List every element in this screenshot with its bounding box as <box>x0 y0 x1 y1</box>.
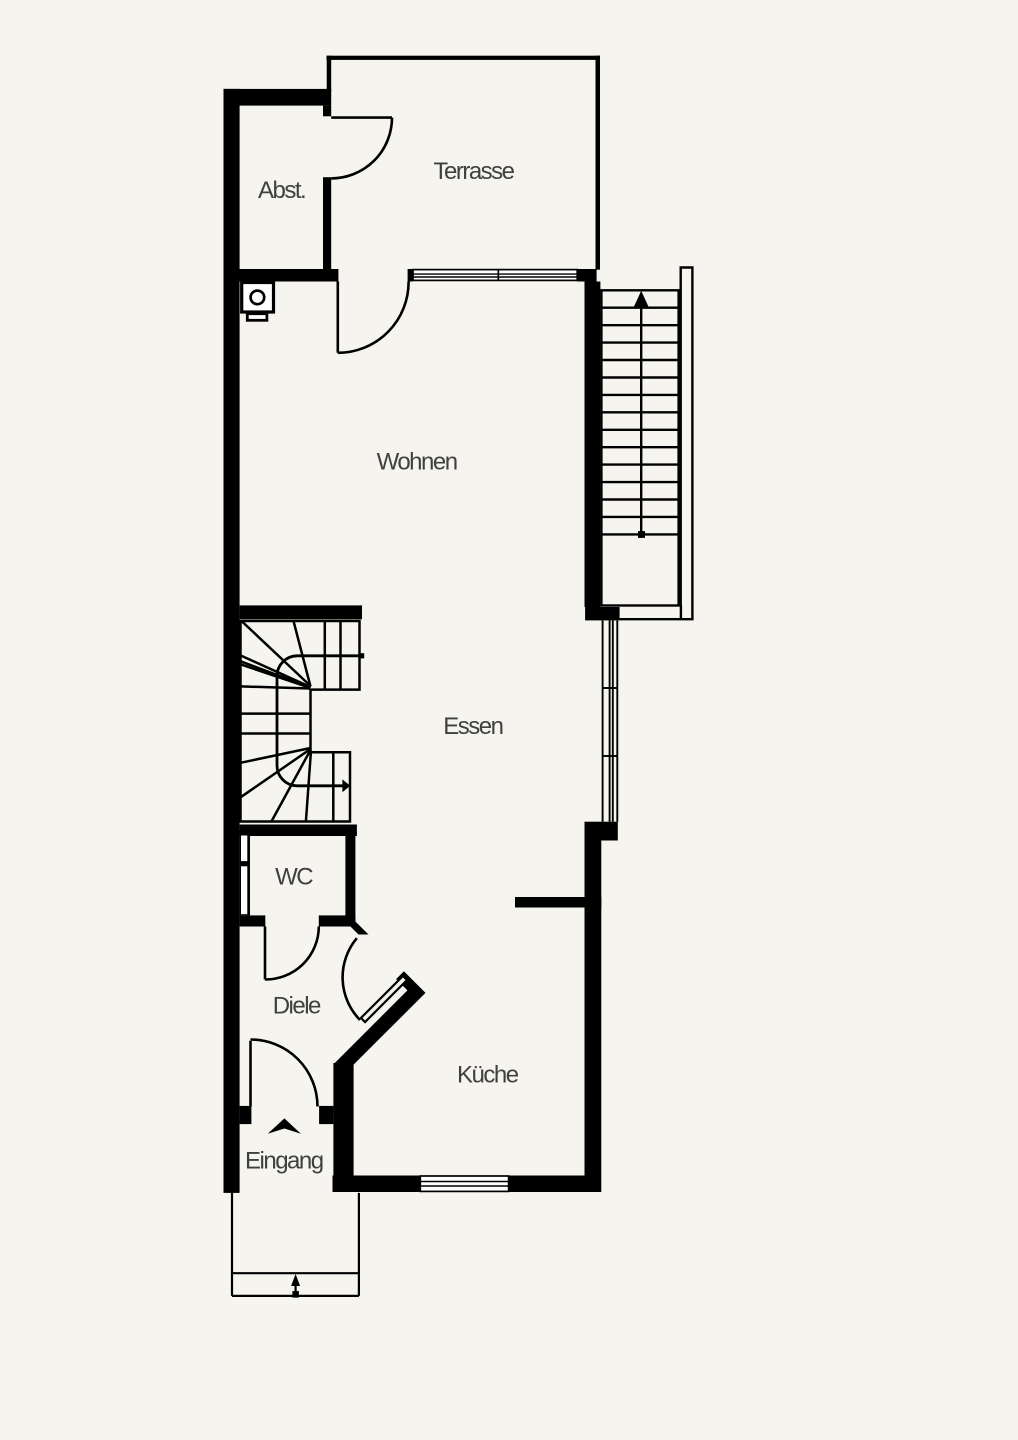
svg-text:Küche: Küche <box>457 1061 519 1088</box>
svg-text:Essen: Essen <box>443 713 502 740</box>
svg-text:Terrasse: Terrasse <box>434 158 515 185</box>
svg-text:Wohnen: Wohnen <box>377 448 457 475</box>
svg-text:Diele: Diele <box>273 993 321 1020</box>
svg-text:WC: WC <box>275 863 313 890</box>
svg-text:Eingang: Eingang <box>245 1148 323 1175</box>
svg-text:Abst.: Abst. <box>258 177 305 204</box>
